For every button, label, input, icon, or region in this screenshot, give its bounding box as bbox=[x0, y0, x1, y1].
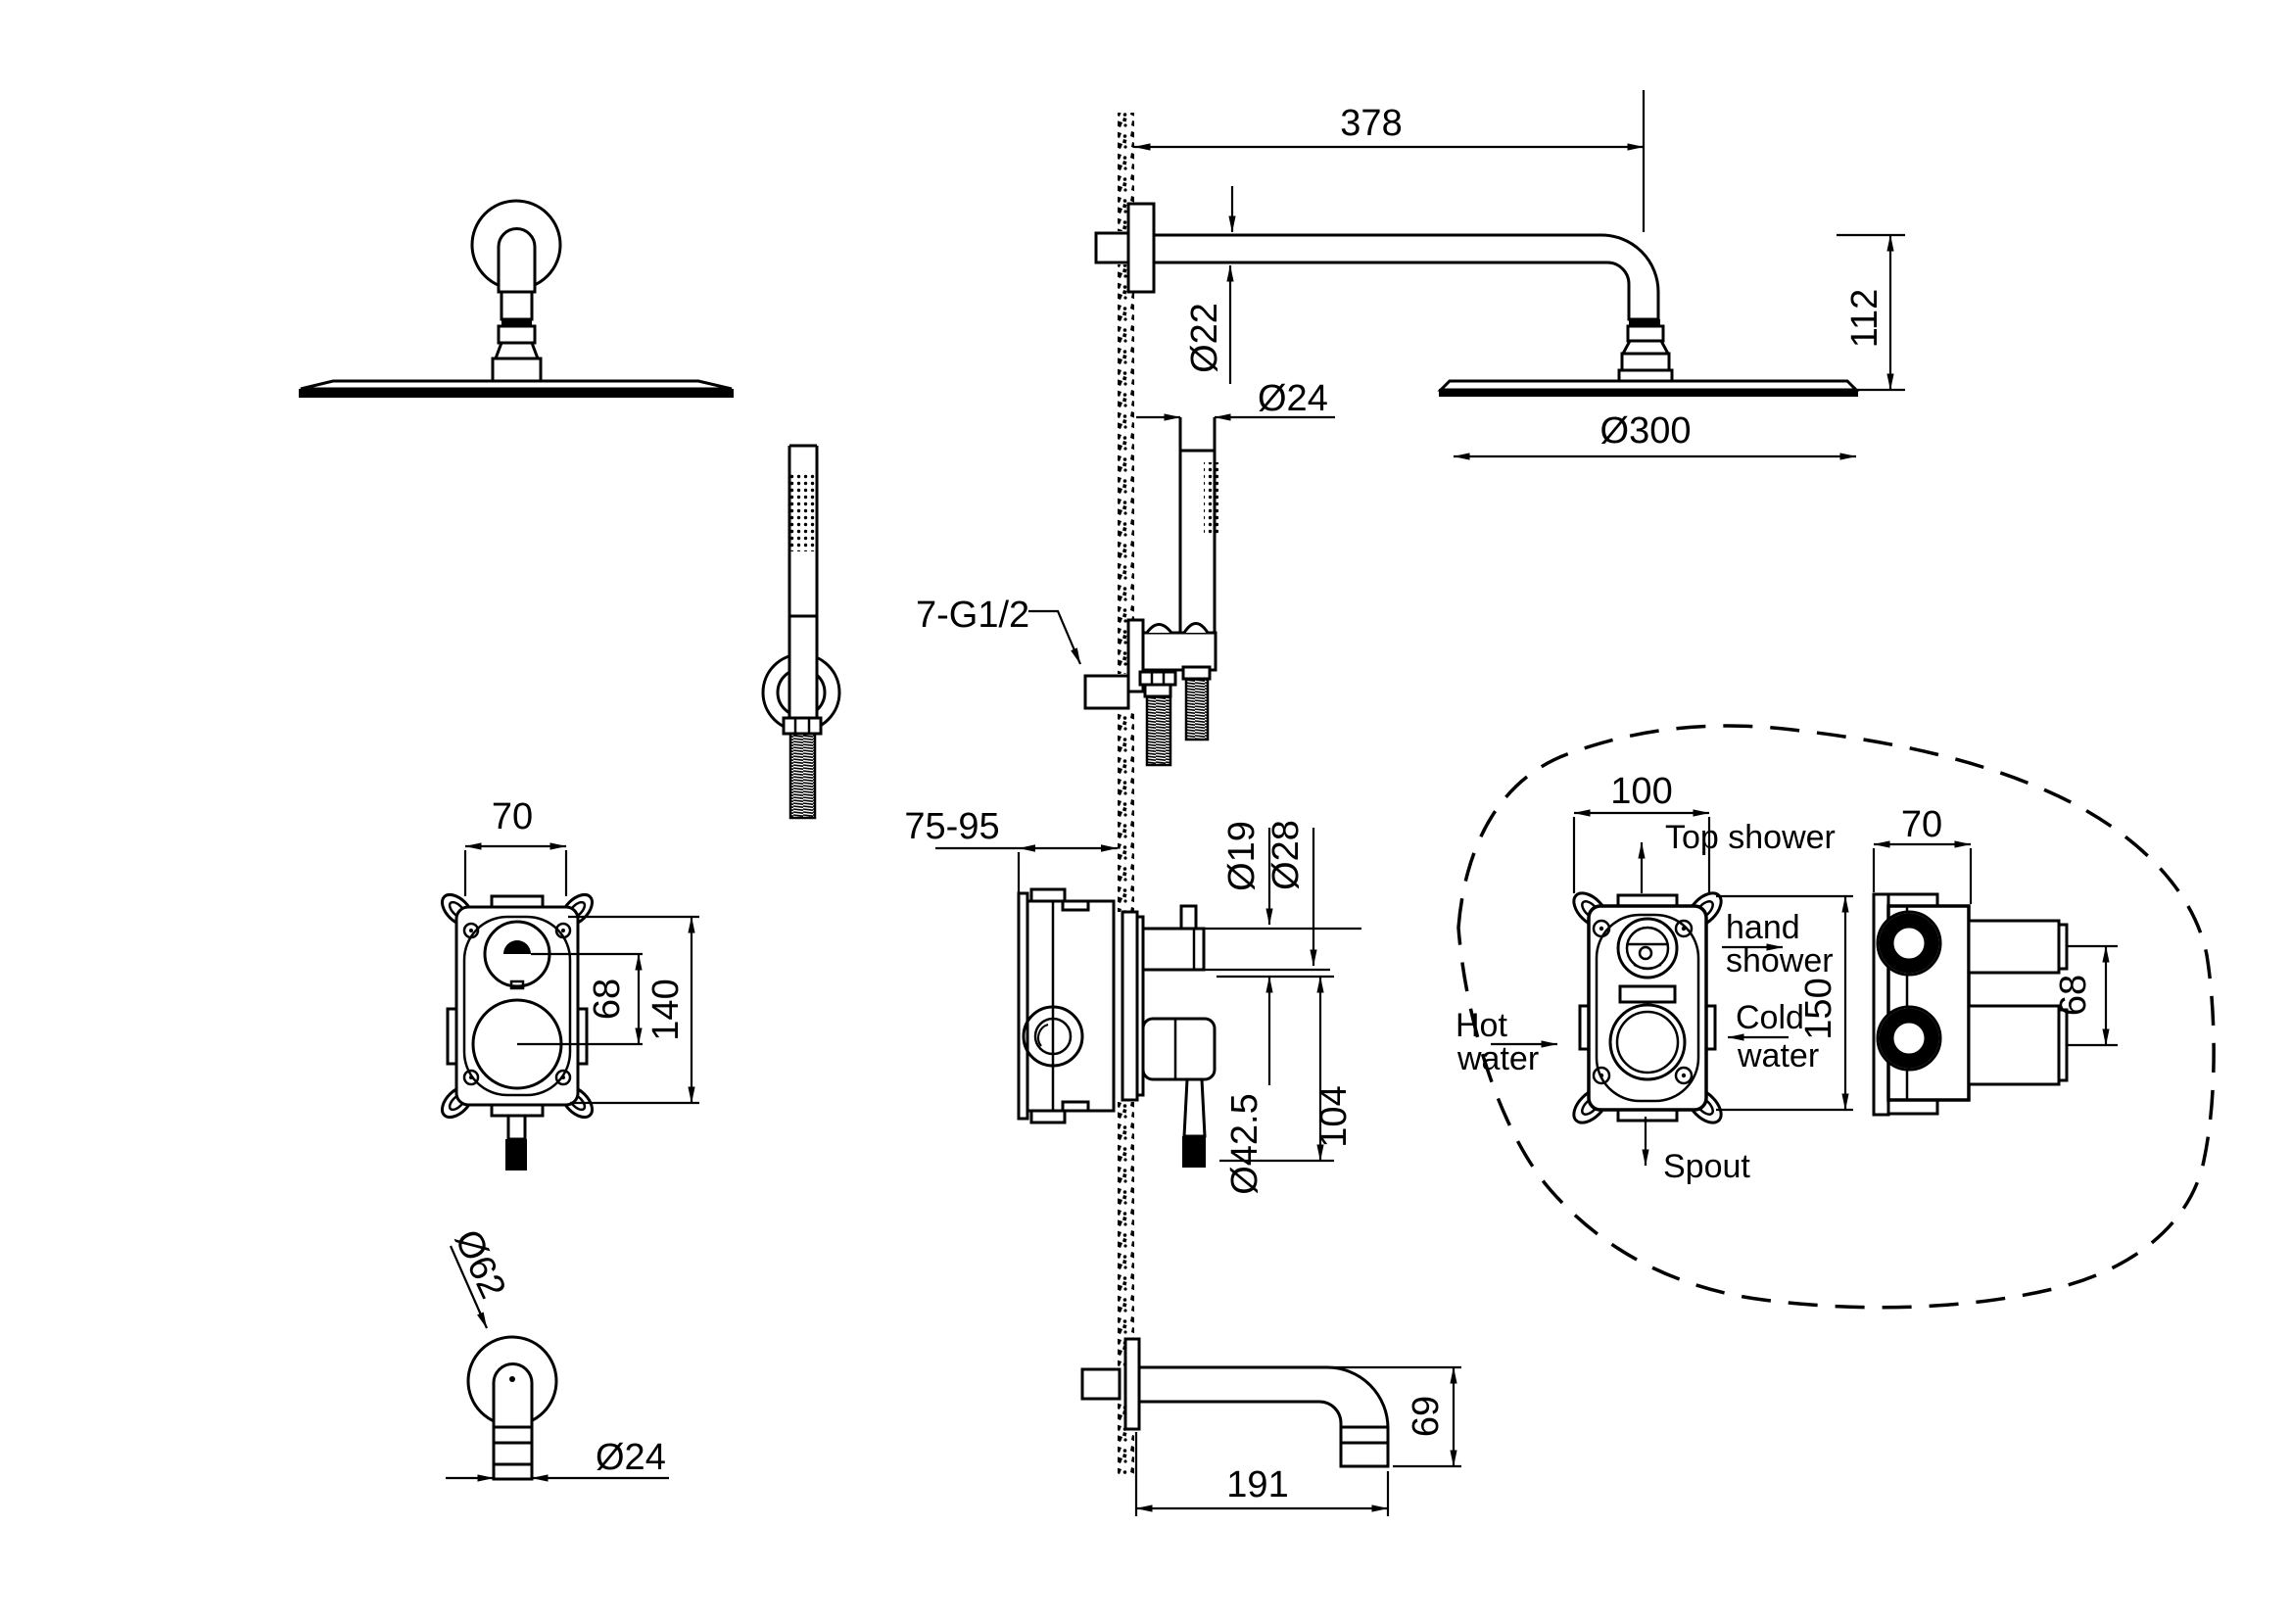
dim-arm-length: 378 bbox=[1340, 103, 1402, 144]
dim-box-width: 70 bbox=[492, 796, 533, 837]
spout-side-view: 191 69 bbox=[1082, 1339, 1461, 1516]
wall-section bbox=[1114, 113, 1138, 1474]
dim-arm-diameter: Ø22 bbox=[1184, 303, 1225, 373]
spray-face bbox=[1204, 462, 1218, 535]
hose-thread-right bbox=[1186, 679, 1208, 740]
wall-outlet bbox=[1085, 676, 1128, 708]
label-hand-2: shower bbox=[1726, 942, 1834, 979]
dim-spout-tube-diameter: Ø24 bbox=[596, 1437, 666, 1478]
label-top-shower: Top shower bbox=[1665, 819, 1836, 856]
shower-system-technical-drawing: 378 Ø22 112 Ø300 Ø24 7-G1/2 bbox=[0, 0, 2291, 1619]
hand-shower-holder bbox=[1143, 633, 1216, 670]
dim-handle-length: 104 bbox=[1313, 1085, 1355, 1147]
dim-hose-diameter: Ø24 bbox=[1258, 378, 1328, 419]
hose-thread-front bbox=[790, 734, 815, 818]
dim-detail-height: 150 bbox=[1798, 978, 1839, 1039]
label-hot-1: Hot bbox=[1456, 1007, 1507, 1044]
dim-handle-diameter: Ø42.5 bbox=[1224, 1093, 1265, 1195]
shower-head-front-view bbox=[299, 201, 734, 398]
hand-shower-front-view bbox=[763, 446, 839, 818]
valve-box-front-view: 70 68 140 bbox=[437, 796, 699, 1170]
dim-spout-length: 191 bbox=[1226, 1464, 1288, 1505]
spout-front-view: Ø24 Ø62 bbox=[446, 1223, 669, 1479]
mixer-handle-lever bbox=[1182, 1136, 1206, 1168]
dim-box-height: 140 bbox=[645, 979, 687, 1040]
label-cold-1: Cold bbox=[1736, 999, 1804, 1036]
wall-hatch bbox=[1118, 113, 1134, 1474]
dim-head-diameter: Ø300 bbox=[1600, 410, 1692, 452]
valve-body-section bbox=[1027, 901, 1114, 1111]
dim-wall-depth: 75-95 bbox=[904, 806, 999, 847]
label-hand-1: hand bbox=[1726, 909, 1800, 946]
rough-in-detail-view: 100 Top shower hand shower 1 bbox=[1456, 726, 2214, 1308]
hose-thread-left bbox=[1147, 696, 1170, 765]
dim-trim-diameter: Ø28 bbox=[1265, 820, 1307, 890]
dim-head-height: 112 bbox=[1844, 289, 1885, 349]
top-shower-side-view: 378 Ø22 112 Ø300 bbox=[1096, 90, 1905, 456]
label-connections: 7-G1/2 bbox=[916, 595, 1029, 636]
shower-head-plate bbox=[1441, 381, 1856, 390]
dim-port-spacing: 68 bbox=[587, 979, 628, 1020]
label-spout: Spout bbox=[1663, 1148, 1750, 1185]
label-hot-2: water bbox=[1456, 1040, 1539, 1077]
dim-detail-side-spacing: 68 bbox=[2053, 975, 2094, 1016]
label-cold-2: water bbox=[1737, 1037, 1819, 1075]
spray-face-front bbox=[788, 473, 815, 551]
dim-stem-diameter: Ø19 bbox=[1221, 821, 1263, 891]
dim-spout-flange-diameter: Ø62 bbox=[447, 1223, 513, 1305]
dim-detail-width: 100 bbox=[1610, 771, 1672, 812]
dim-detail-side-width: 70 bbox=[1901, 804, 1942, 845]
mixer-handle-body bbox=[1143, 1019, 1215, 1079]
dim-spout-height: 69 bbox=[1406, 1396, 1447, 1437]
technical-drawing-page: 378 Ø22 112 Ø300 Ø24 7-G1/2 bbox=[0, 0, 2291, 1619]
